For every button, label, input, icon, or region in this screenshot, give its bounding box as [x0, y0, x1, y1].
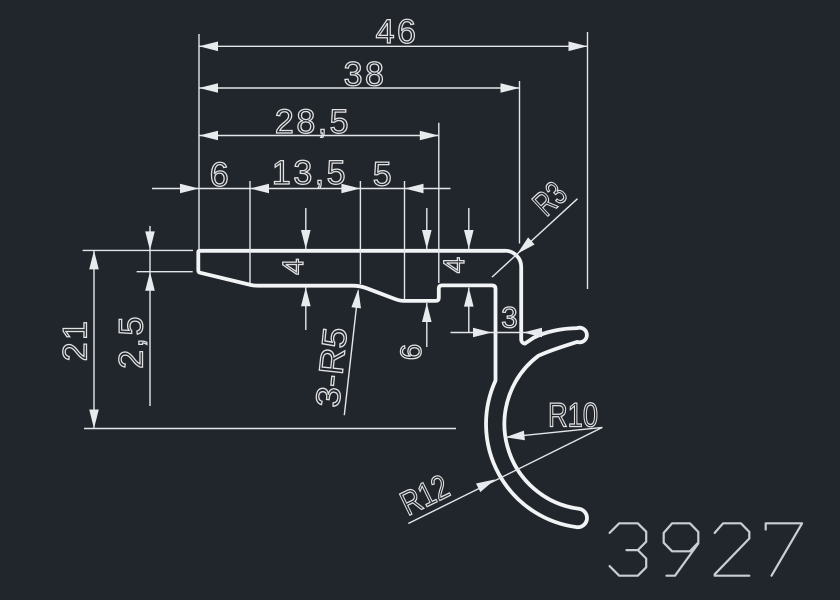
svg-text:3: 3: [501, 302, 517, 335]
svg-text:4: 4: [438, 257, 471, 273]
svg-text:R10: R10: [548, 397, 598, 435]
svg-text:28,5: 28,5: [275, 103, 351, 141]
svg-text:6: 6: [395, 344, 428, 360]
svg-text:21: 21: [57, 319, 95, 362]
svg-text:6: 6: [210, 156, 231, 194]
svg-text:46: 46: [376, 13, 419, 51]
svg-text:5: 5: [373, 156, 394, 194]
svg-text:38: 38: [344, 56, 387, 94]
svg-text:13,5: 13,5: [272, 154, 348, 192]
svg-text:2,5: 2,5: [113, 314, 151, 369]
svg-text:4: 4: [277, 258, 310, 274]
